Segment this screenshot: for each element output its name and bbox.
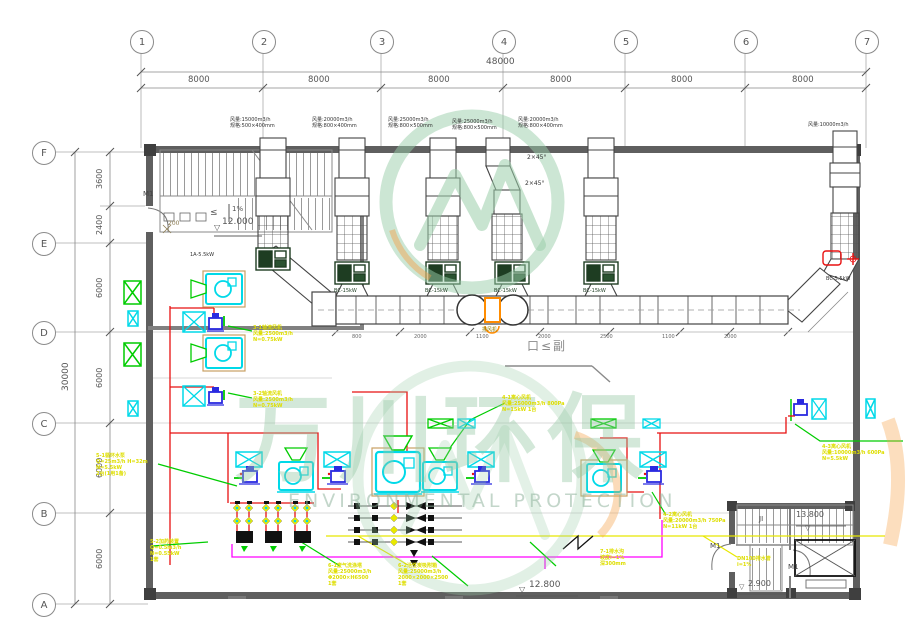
level-bottomright-dn: 2.900 <box>748 580 771 589</box>
section-cut-mark <box>563 536 593 549</box>
annotation-l2: 5-2加药装置Q=0.5m3/hN=0.55kW1套 <box>150 539 181 563</box>
fan-label-bc3: BC-15kW <box>494 288 517 294</box>
damper-pump-mid-2 <box>322 452 350 484</box>
dim-row-seg: 6000 <box>96 278 105 298</box>
fan-label-1a: 1A-5.5kW <box>190 252 214 258</box>
stack-label-1: 风量:15000m3/h规格:500×400mm <box>230 117 275 129</box>
section-note-arrow <box>505 366 610 382</box>
magenta-piping <box>232 520 662 569</box>
duct-dim: 800 <box>352 334 362 340</box>
door-label-br1: M1 <box>710 543 721 551</box>
drawing-linework <box>0 0 907 641</box>
sill-note: 200 <box>168 221 179 228</box>
level-tri: ▽ <box>805 525 810 533</box>
grid-bubble-col-3: 3 <box>370 30 394 54</box>
grid-bubble-row-d: D <box>32 321 56 345</box>
door-label-topleft: M1 <box>143 191 154 199</box>
dim-row-seg: 2400 <box>96 215 105 235</box>
elbow-note-2: 2×45° <box>525 181 544 188</box>
grid-bubble-col-7: 7 <box>855 30 879 54</box>
scroll-fan-mid-1 <box>277 448 315 492</box>
annotation-r1: 4-2离心风机风量:20000m3/h 750PaN=11kW 1台 <box>663 512 726 530</box>
dim-bay: 8000 <box>308 76 330 85</box>
drain-note: 排风机 <box>482 328 497 334</box>
level-bottomright-up: 13.800 <box>796 511 824 520</box>
row-c-dampers <box>428 419 660 428</box>
inline-fan-2 <box>498 295 528 325</box>
inline-fan-1 <box>457 295 487 325</box>
interior-walls <box>148 148 790 598</box>
grid-bubble-row-b: B <box>32 502 56 526</box>
duct-dim: 1100 <box>476 334 489 340</box>
offset-elbow <box>486 166 520 190</box>
grid-bubble-col-4: 4 <box>492 30 516 54</box>
elbow-note-1: 2×45° <box>527 155 546 162</box>
door-label-br2: M1 <box>788 564 799 572</box>
grid-bubble-col-6: 6 <box>734 30 758 54</box>
level-tri: ▽ <box>214 224 220 233</box>
valve-manifolds <box>233 501 311 552</box>
dim-row-seg: 6000 <box>96 549 105 569</box>
level-tri: ▽ <box>739 584 744 592</box>
leq-note: ≤ <box>210 209 218 219</box>
section-note: 口≤副 <box>527 340 567 353</box>
annotation-l1: 5-1循环水泵Q=25m3/h H=32mN=5.5kW2台(1用1备) <box>96 453 148 477</box>
main-duct <box>312 292 788 326</box>
flow-arrow <box>410 550 418 557</box>
dim-bay: 8000 <box>428 76 450 85</box>
level-tri: ▽ <box>519 586 525 595</box>
damper-pump-mid-1 <box>234 452 262 484</box>
scroll-fan-left-1 <box>191 271 245 307</box>
scroll-fan-mid-4 <box>581 450 627 496</box>
damper-pump-left-2 <box>183 386 224 406</box>
fan-label-bc2: BC-15kW <box>425 288 448 294</box>
duct-dim: 2000 <box>414 334 427 340</box>
elevator-shaft <box>795 540 855 588</box>
level-bottommid: 12.800 <box>529 581 561 591</box>
damper-pump-mid-4 <box>638 452 666 484</box>
duct-dim: 2000 <box>538 334 551 340</box>
fan-label-bc4: BC-15kW <box>583 288 606 294</box>
stack-label-5: 风量:20000m3/h规格:800×400mm <box>518 117 563 129</box>
stair-label: JI <box>759 516 763 524</box>
annotation-r2: 4-3离心风机风量:10000m3/h 600PaN=5.5kW <box>822 444 885 462</box>
annotation-m1: 6-1废气洗涤塔风量:25000m3/hΦ2000×H65001套 <box>328 563 371 587</box>
dim-total-height: 30000 <box>62 362 72 391</box>
scroll-fan-left-2 <box>191 335 245 371</box>
dim-row-seg: 3600 <box>96 169 105 189</box>
dim-bay: 8000 <box>792 76 814 85</box>
level-topleft: 12.000 <box>222 218 254 228</box>
duct-dim: 2500 <box>600 334 613 340</box>
grid-bubble-col-1: 1 <box>130 30 154 54</box>
interior-grid-lines <box>153 332 853 513</box>
annotation-c1: 4-1离心风机风量:25000m3/h 800PaN=15kW 1台 <box>502 395 565 413</box>
annotation-m2: 6-2活性炭吸附箱风量:25000m3/h2000×2000×25001套 <box>398 563 448 587</box>
intake-funnel <box>191 344 206 362</box>
intake-funnel <box>191 280 206 298</box>
annotation-b1: 7-1排水沟坡度i=1%深300mm <box>600 549 626 567</box>
dim-bay: 8000 <box>671 76 693 85</box>
dim-total-width: 48000 <box>486 58 515 68</box>
dim-bay: 8000 <box>188 76 210 85</box>
dim-bay: 8000 <box>550 76 572 85</box>
stack-label-6: 风量:10000m3/h <box>808 122 849 128</box>
stack-label-2: 风量:20000m3/h规格:800×400mm <box>312 117 357 129</box>
grid-bubble-row-c: C <box>32 412 56 436</box>
cad-drawing-canvas: 万川环保 ENVIRONMENTAL PROTECTION 1 2 3 4 5 … <box>0 0 907 641</box>
pump-right <box>788 399 826 421</box>
damper-pump-mid-3 <box>466 452 494 484</box>
scroll-fan-mid-2-large <box>372 436 424 496</box>
annotation-a1: 3-1轴流风机风量:2500m3/hN=0.75kW <box>253 325 293 343</box>
stack-label-3: 风量:25000m3/h规格:800×500mm <box>388 117 433 129</box>
duct-dim: 2000 <box>724 334 737 340</box>
dim-row-seg: 6000 <box>96 368 105 388</box>
grid-bubble-col-2: 2 <box>252 30 276 54</box>
annotation-y2: DN100排水管i=1% <box>737 556 771 568</box>
fan-label-bc1: BC-15kW <box>334 288 357 294</box>
grid-bubble-row-a: A <box>32 593 56 617</box>
stack-label-4: 风量:25000m3/h规格:800×500mm <box>452 119 497 131</box>
grid-bubble-row-e: E <box>32 232 56 256</box>
slope-note: 1% <box>232 206 243 214</box>
annotation-a2: 3-2轴流风机风量:2500m3/hN=0.75kW <box>253 391 293 409</box>
scroll-fan-mid-3 <box>421 448 459 492</box>
grid-bubble-col-5: 5 <box>614 30 638 54</box>
duct-dim: 1100 <box>662 334 675 340</box>
fan-label-bc5: BC-5.5kW <box>826 276 850 282</box>
grid-bubble-row-f: F <box>32 141 56 165</box>
